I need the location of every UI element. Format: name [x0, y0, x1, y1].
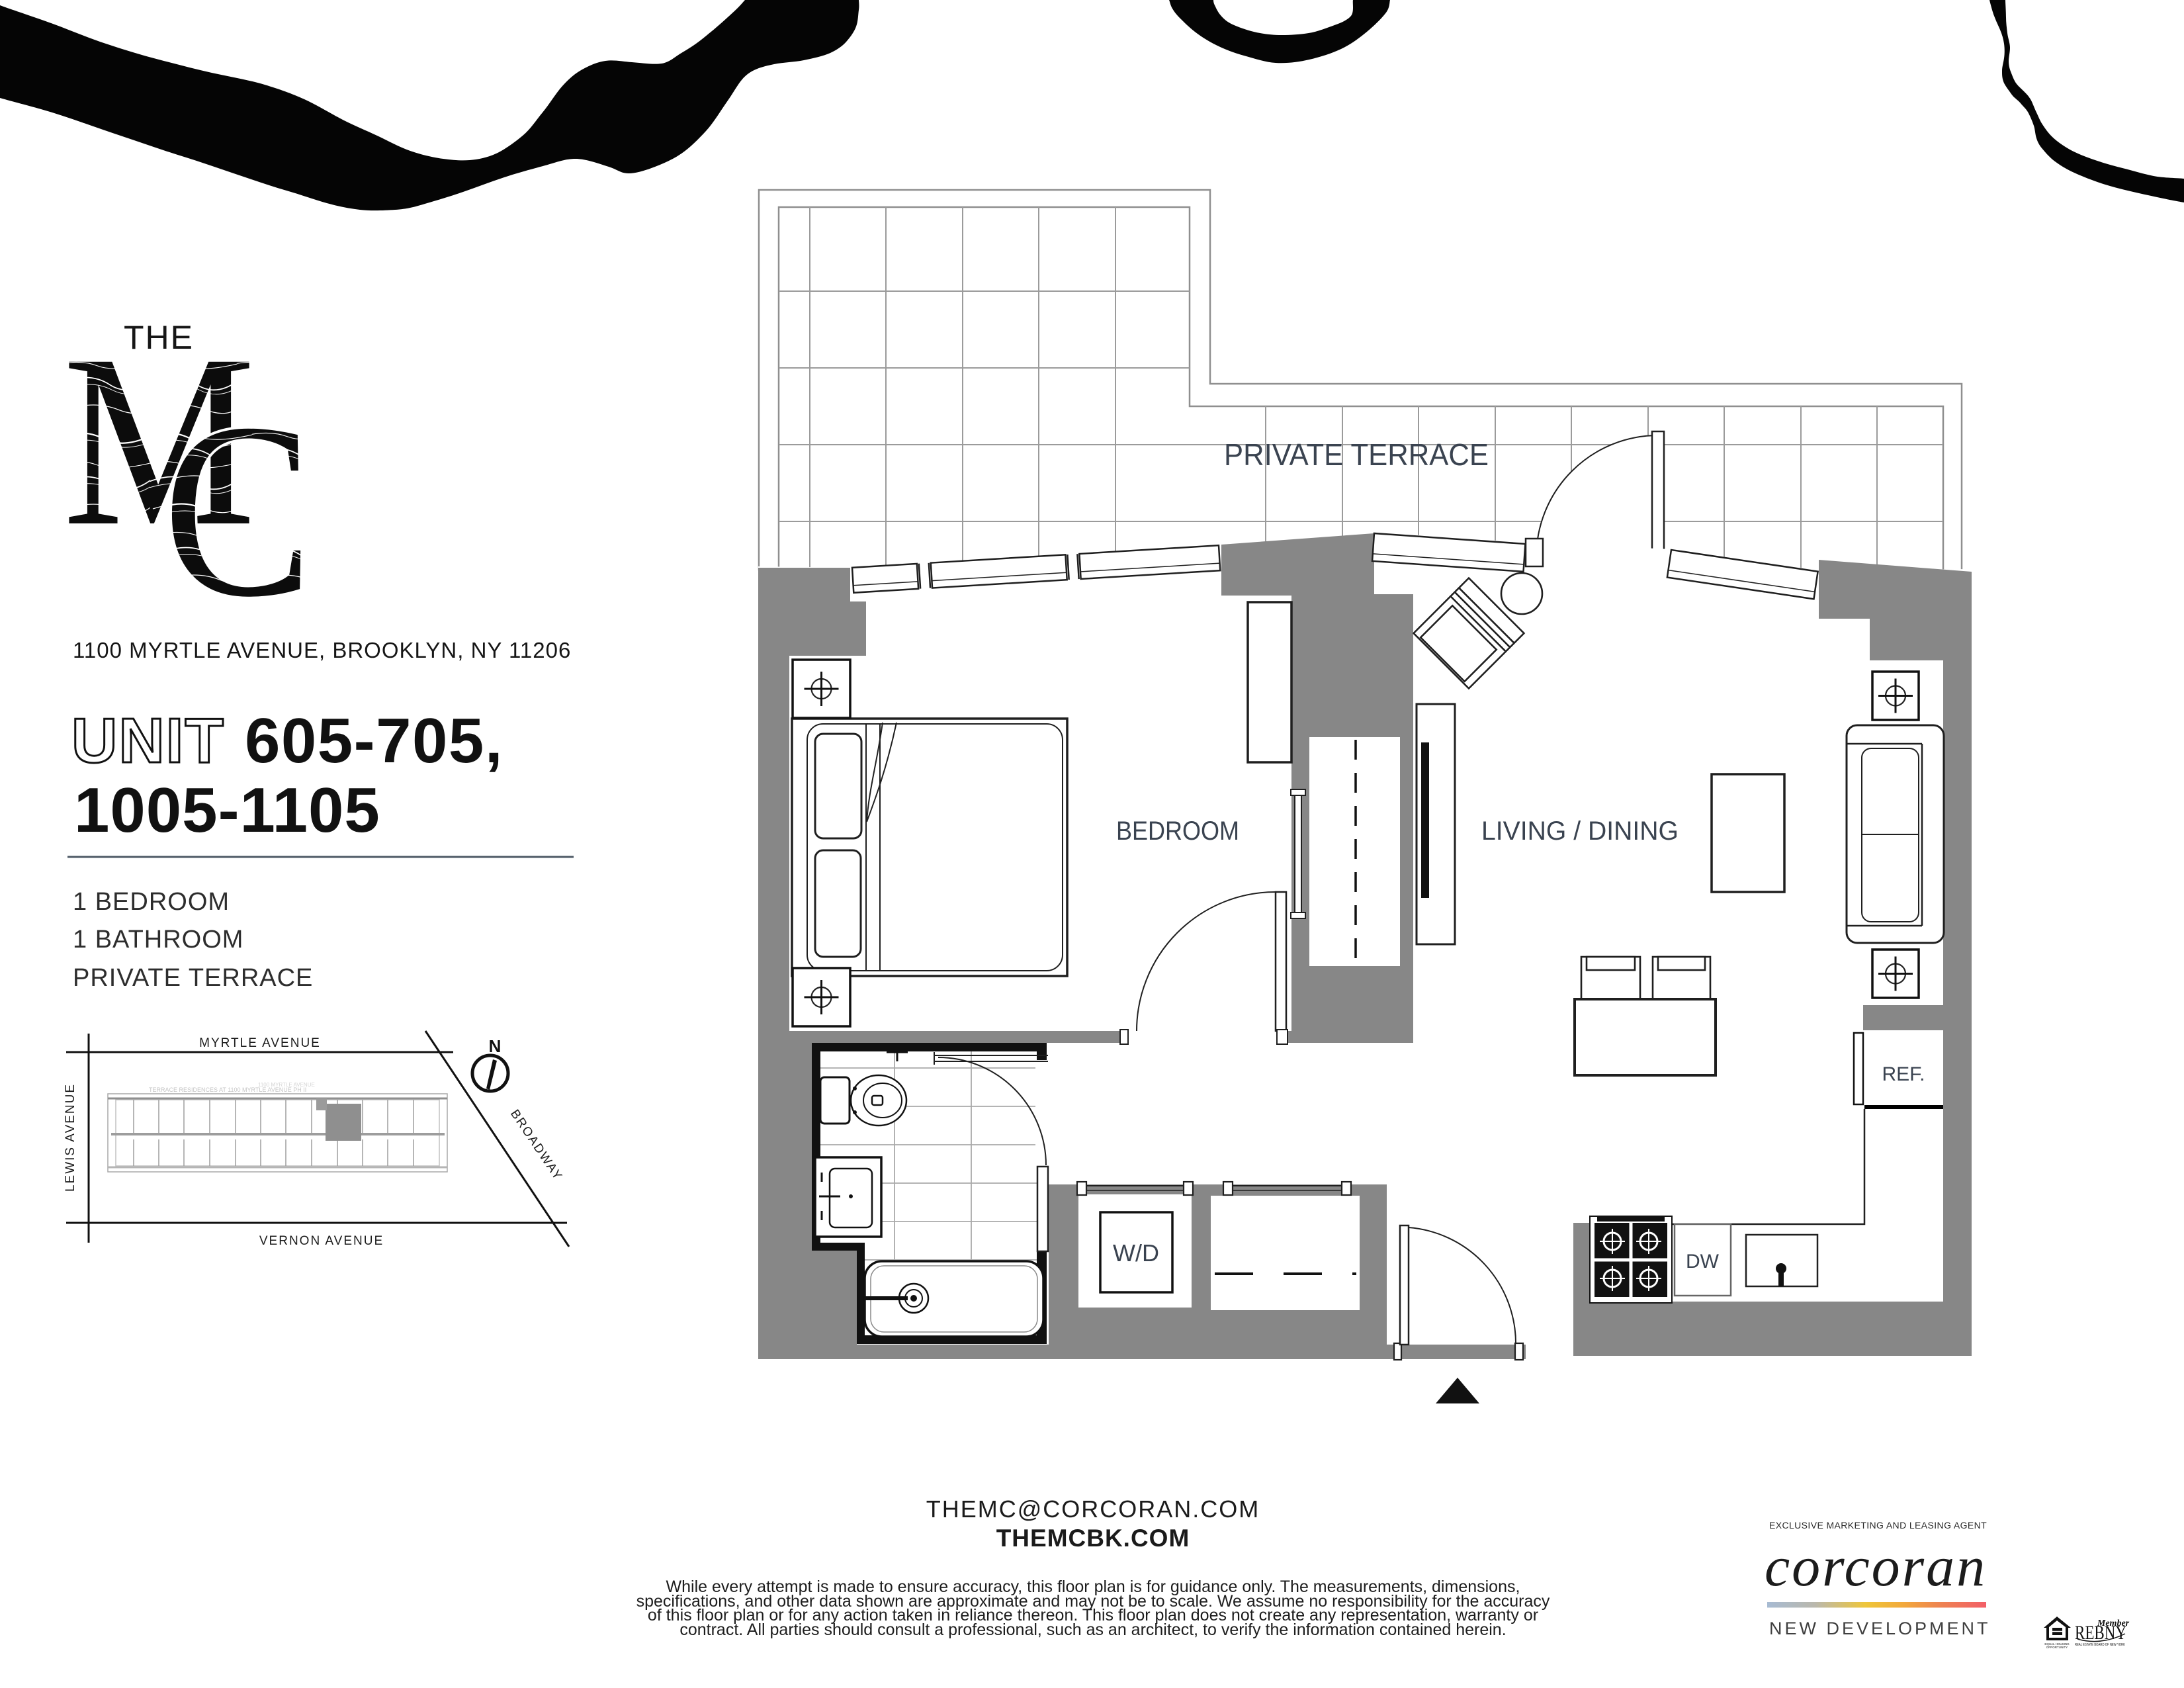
- svg-text:PRIVATE TERRACE: PRIVATE TERRACE: [1224, 437, 1489, 472]
- svg-text:THEMCBK.COM: THEMCBK.COM: [996, 1525, 1190, 1552]
- svg-text:LIVING / DINING: LIVING / DINING: [1481, 817, 1679, 846]
- svg-text:1005-1105: 1005-1105: [74, 775, 380, 846]
- svg-text:DW: DW: [1686, 1251, 1720, 1272]
- svg-text:corcoran: corcoran: [1765, 1534, 1987, 1598]
- svg-text:LEWIS AVENUE: LEWIS AVENUE: [64, 1083, 77, 1192]
- svg-text:UNIT: UNIT: [71, 705, 225, 776]
- svg-text:REF.: REF.: [1882, 1063, 1925, 1085]
- svg-text:1 BEDROOM: 1 BEDROOM: [73, 888, 230, 916]
- svg-text:NEW DEVELOPMENT: NEW DEVELOPMENT: [1769, 1619, 1991, 1638]
- svg-text:605-705,: 605-705,: [245, 705, 503, 776]
- svg-text:C: C: [163, 372, 313, 648]
- svg-text:MYRTLE AVENUE: MYRTLE AVENUE: [199, 1036, 321, 1050]
- svg-text:PRIVATE TERRACE: PRIVATE TERRACE: [73, 964, 313, 992]
- svg-text:1100 MYRTLE AVENUE: 1100 MYRTLE AVENUE: [258, 1082, 315, 1088]
- svg-text:EXCLUSIVE MARKETING AND LEASIN: EXCLUSIVE MARKETING AND LEASING AGENT: [1769, 1520, 1987, 1531]
- svg-text:1100 MYRTLE AVENUE, BROOKLYN,: 1100 MYRTLE AVENUE, BROOKLYN, NY 11206: [73, 638, 571, 662]
- svg-text:THEMC@CORCORAN.COM: THEMC@CORCORAN.COM: [926, 1495, 1260, 1523]
- svg-text:REAL ESTATE BOARD OF NEW YORK: REAL ESTATE BOARD OF NEW YORK: [2075, 1643, 2125, 1647]
- svg-text:1 BATHROOM: 1 BATHROOM: [73, 926, 243, 954]
- svg-text:VERNON AVENUE: VERNON AVENUE: [259, 1234, 384, 1248]
- svg-text:N: N: [489, 1036, 502, 1056]
- svg-text:BEDROOM: BEDROOM: [1116, 817, 1239, 846]
- svg-text:OPPORTUNITY: OPPORTUNITY: [2046, 1646, 2068, 1649]
- svg-text:W/D: W/D: [1113, 1239, 1159, 1266]
- svg-text:contract. All parties should c: contract. All parties should consult a p…: [679, 1621, 1506, 1639]
